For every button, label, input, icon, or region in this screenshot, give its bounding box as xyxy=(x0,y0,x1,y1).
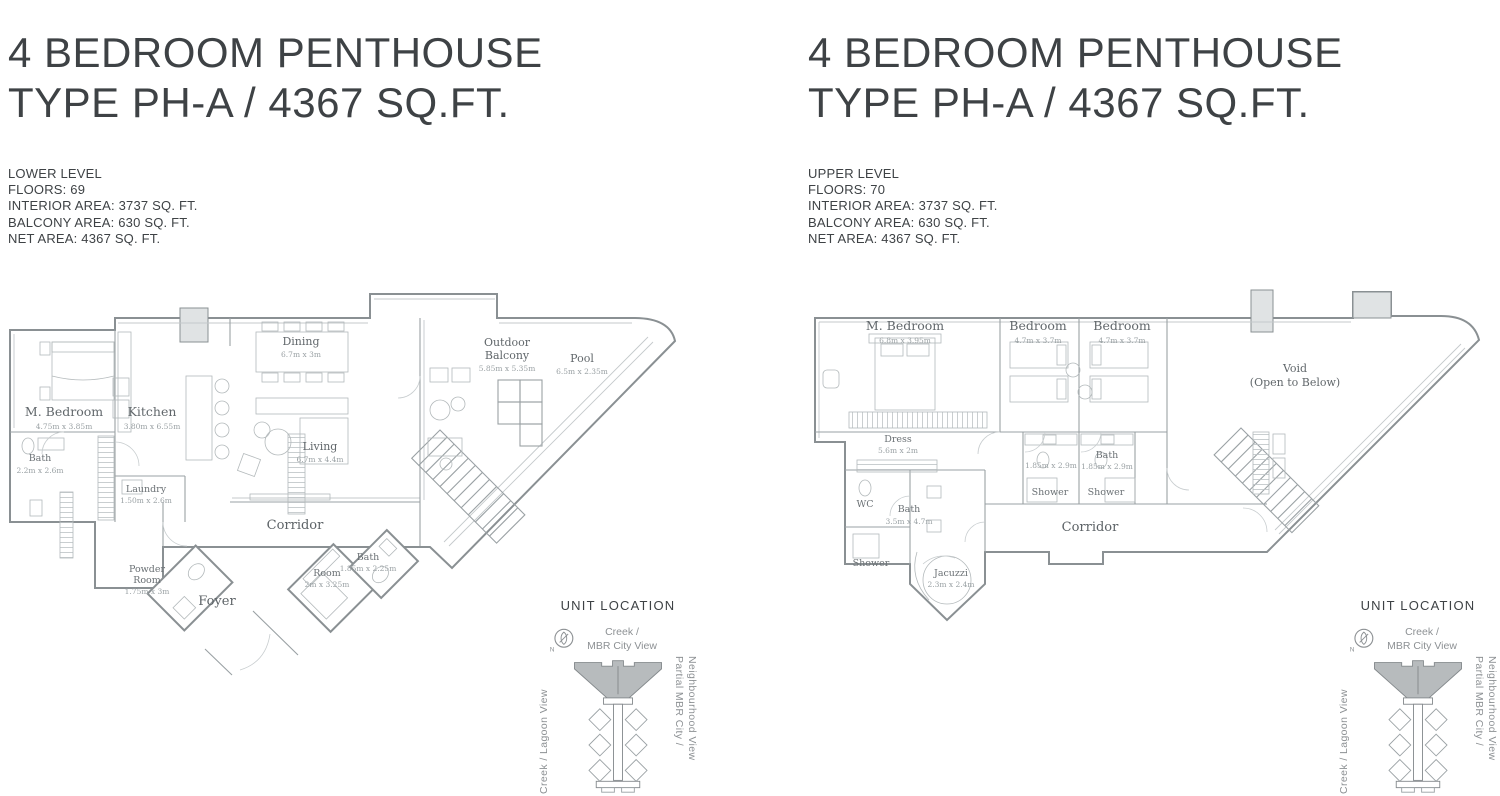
label-pool: Pool xyxy=(570,352,594,365)
dims-laundry: 1.50m x 2.6m xyxy=(120,496,172,505)
spec-floors: FLOORS: 69 xyxy=(8,182,198,198)
dims-living: 6.7m x 4.4m xyxy=(296,455,343,464)
dims-bath-master: 3.5m x 4.7m xyxy=(885,517,932,526)
title-line1: 4 BEDROOM PENTHOUSE xyxy=(808,28,1343,78)
view-right-line2: Neighbourhood View xyxy=(1485,656,1498,796)
dims-jacuzzi: 2.3m x 2.4m xyxy=(927,580,974,589)
spec-net-area: NET AREA: 4367 SQ. FT. xyxy=(808,231,998,247)
title-line1: 4 BEDROOM PENTHOUSE xyxy=(8,28,543,78)
label-bath: Bath xyxy=(29,453,52,464)
label-corridor: Corridor xyxy=(267,518,325,533)
view-top-line1: Creek / xyxy=(576,625,668,639)
spec-balcony-area: BALCONY AREA: 630 SQ. FT. xyxy=(808,215,998,231)
view-label-left: Creek / Lagoon View xyxy=(538,656,550,794)
view-label-top: Creek / MBR City View xyxy=(576,625,668,653)
view-top-line1: Creek / xyxy=(1376,625,1468,639)
interior-walls xyxy=(815,318,1267,564)
label-bedroom-2: Bedroom xyxy=(1093,318,1151,333)
label-bath2: Bath xyxy=(357,552,380,563)
label-living: Living xyxy=(303,440,338,453)
label-outdoor-balcony-1: Outdoor xyxy=(484,336,531,349)
label-laundry: Laundry xyxy=(126,484,167,495)
dims-dress: 5.6m x 2m xyxy=(878,446,918,455)
tower-diagram xyxy=(1368,658,1468,794)
label-corridor: Corridor xyxy=(1062,520,1120,535)
dims-powder: 1.75m x 3m xyxy=(125,587,170,596)
unit-location-title: UNIT LOCATION xyxy=(1338,598,1498,613)
service-shaft xyxy=(1251,290,1273,332)
compass-icon: N xyxy=(546,625,578,659)
dims-bath-2: 1.85m x 2.9m xyxy=(1081,462,1133,471)
label-bedroom-1: Bedroom xyxy=(1009,318,1067,333)
label-jacuzzi: Jacuzzi xyxy=(933,568,968,579)
label-wc: WC xyxy=(856,499,873,510)
spec-net-area: NET AREA: 4367 SQ. FT. xyxy=(8,231,198,247)
label-void-1: Void xyxy=(1282,362,1307,375)
view-label-right: Partial MBR City / Neighbourhood View xyxy=(672,656,698,796)
pool-steps xyxy=(498,380,542,446)
dims-m-bedroom: 4.75m x 3.85m xyxy=(36,422,93,431)
dims-bedroom-1: 4.7m x 3.7m xyxy=(1014,336,1061,345)
dims-bath2: 1.85m x 2.25m xyxy=(340,564,397,573)
label-bath-2: Bath xyxy=(1096,450,1119,461)
view-top-line2: MBR City View xyxy=(1376,639,1468,653)
compass-icon: N xyxy=(1346,625,1378,659)
spec-level: LOWER LEVEL xyxy=(8,166,198,182)
floorplan-upper-level: M. Bedroom 6.8m x 3.95m Bedroom 4.7m x 3… xyxy=(805,282,1495,622)
label-bath-master: Bath xyxy=(898,504,921,515)
spec-floors: FLOORS: 70 xyxy=(808,182,998,198)
label-shower-1: Shower xyxy=(1032,487,1069,498)
view-label-left: Creek / Lagoon View xyxy=(1338,656,1350,794)
label-outdoor-balcony-2: Balcony xyxy=(485,349,530,362)
page: 4 BEDROOM PENTHOUSE TYPE PH-A / 4367 SQ.… xyxy=(0,0,1500,796)
view-right-line2: Neighbourhood View xyxy=(685,656,698,796)
page-title-lower: 4 BEDROOM PENTHOUSE TYPE PH-A / 4367 SQ.… xyxy=(8,28,543,127)
page-title-upper: 4 BEDROOM PENTHOUSE TYPE PH-A / 4367 SQ.… xyxy=(808,28,1343,127)
unit-location-lower: UNIT LOCATION N Creek / MBR City View Cr… xyxy=(538,598,698,796)
tower-diagram xyxy=(568,658,668,794)
dims-pool: 6.5m x 2.35m xyxy=(556,367,608,376)
view-top-line2: MBR City View xyxy=(576,639,668,653)
dims-m-bedroom: 6.8m x 3.95m xyxy=(879,336,931,345)
dims-bath: 2.2m x 2.6m xyxy=(16,466,63,475)
view-label-top: Creek / MBR City View xyxy=(1376,625,1468,653)
label-void-2: (Open to Below) xyxy=(1250,376,1340,389)
label-dress: Dress xyxy=(884,434,912,445)
specs-upper: UPPER LEVEL FLOORS: 70 INTERIOR AREA: 37… xyxy=(808,166,998,247)
service-shaft xyxy=(180,308,208,342)
label-m-bedroom: M. Bedroom xyxy=(25,404,103,419)
label-m-bedroom: M. Bedroom xyxy=(866,318,944,333)
door-arcs xyxy=(42,376,420,670)
compass-north-label: N xyxy=(1350,646,1355,653)
label-foyer: Foyer xyxy=(198,594,236,609)
spec-interior-area: INTERIOR AREA: 3737 SQ. FT. xyxy=(8,198,198,214)
unit-location-upper: UNIT LOCATION N Creek / MBR City View Cr… xyxy=(1338,598,1498,796)
label-shower-2: Shower xyxy=(1088,487,1125,498)
label-dining: Dining xyxy=(282,335,319,348)
label-powder-2: Room xyxy=(133,575,161,586)
label-powder-1: Powder xyxy=(129,564,166,575)
label-kitchen: Kitchen xyxy=(128,404,177,419)
dims-dining: 6.7m x 3m xyxy=(281,350,321,359)
compass-north-label: N xyxy=(550,646,555,653)
dims-room: 2m x 3.25m xyxy=(305,580,350,589)
dims-bedroom-2: 4.7m x 3.7m xyxy=(1098,336,1145,345)
unit-location-title: UNIT LOCATION xyxy=(538,598,698,613)
view-right-line1: Partial MBR City / xyxy=(672,656,685,796)
specs-lower: LOWER LEVEL FLOORS: 69 INTERIOR AREA: 37… xyxy=(8,166,198,247)
spec-interior-area: INTERIOR AREA: 3737 SQ. FT. xyxy=(808,198,998,214)
view-right-line1: Partial MBR City / xyxy=(1472,656,1485,796)
label-room: Room xyxy=(313,568,341,579)
spec-balcony-area: BALCONY AREA: 630 SQ. FT. xyxy=(8,215,198,231)
title-line2: TYPE PH-A / 4367 SQ.FT. xyxy=(808,78,1343,128)
dims-bath-1: 1.85m x 2.9m xyxy=(1025,461,1077,470)
spec-level: UPPER LEVEL xyxy=(808,166,998,182)
roof-terrace-mass xyxy=(1353,292,1391,318)
view-label-right: Partial MBR City / Neighbourhood View xyxy=(1472,656,1498,796)
label-shower-master: Shower xyxy=(853,558,890,569)
title-line2: TYPE PH-A / 4367 SQ.FT. xyxy=(8,78,543,128)
dims-outdoor-balcony: 5.85m x 5.35m xyxy=(479,364,536,373)
dims-kitchen: 3.80m x 6.55m xyxy=(124,422,181,431)
